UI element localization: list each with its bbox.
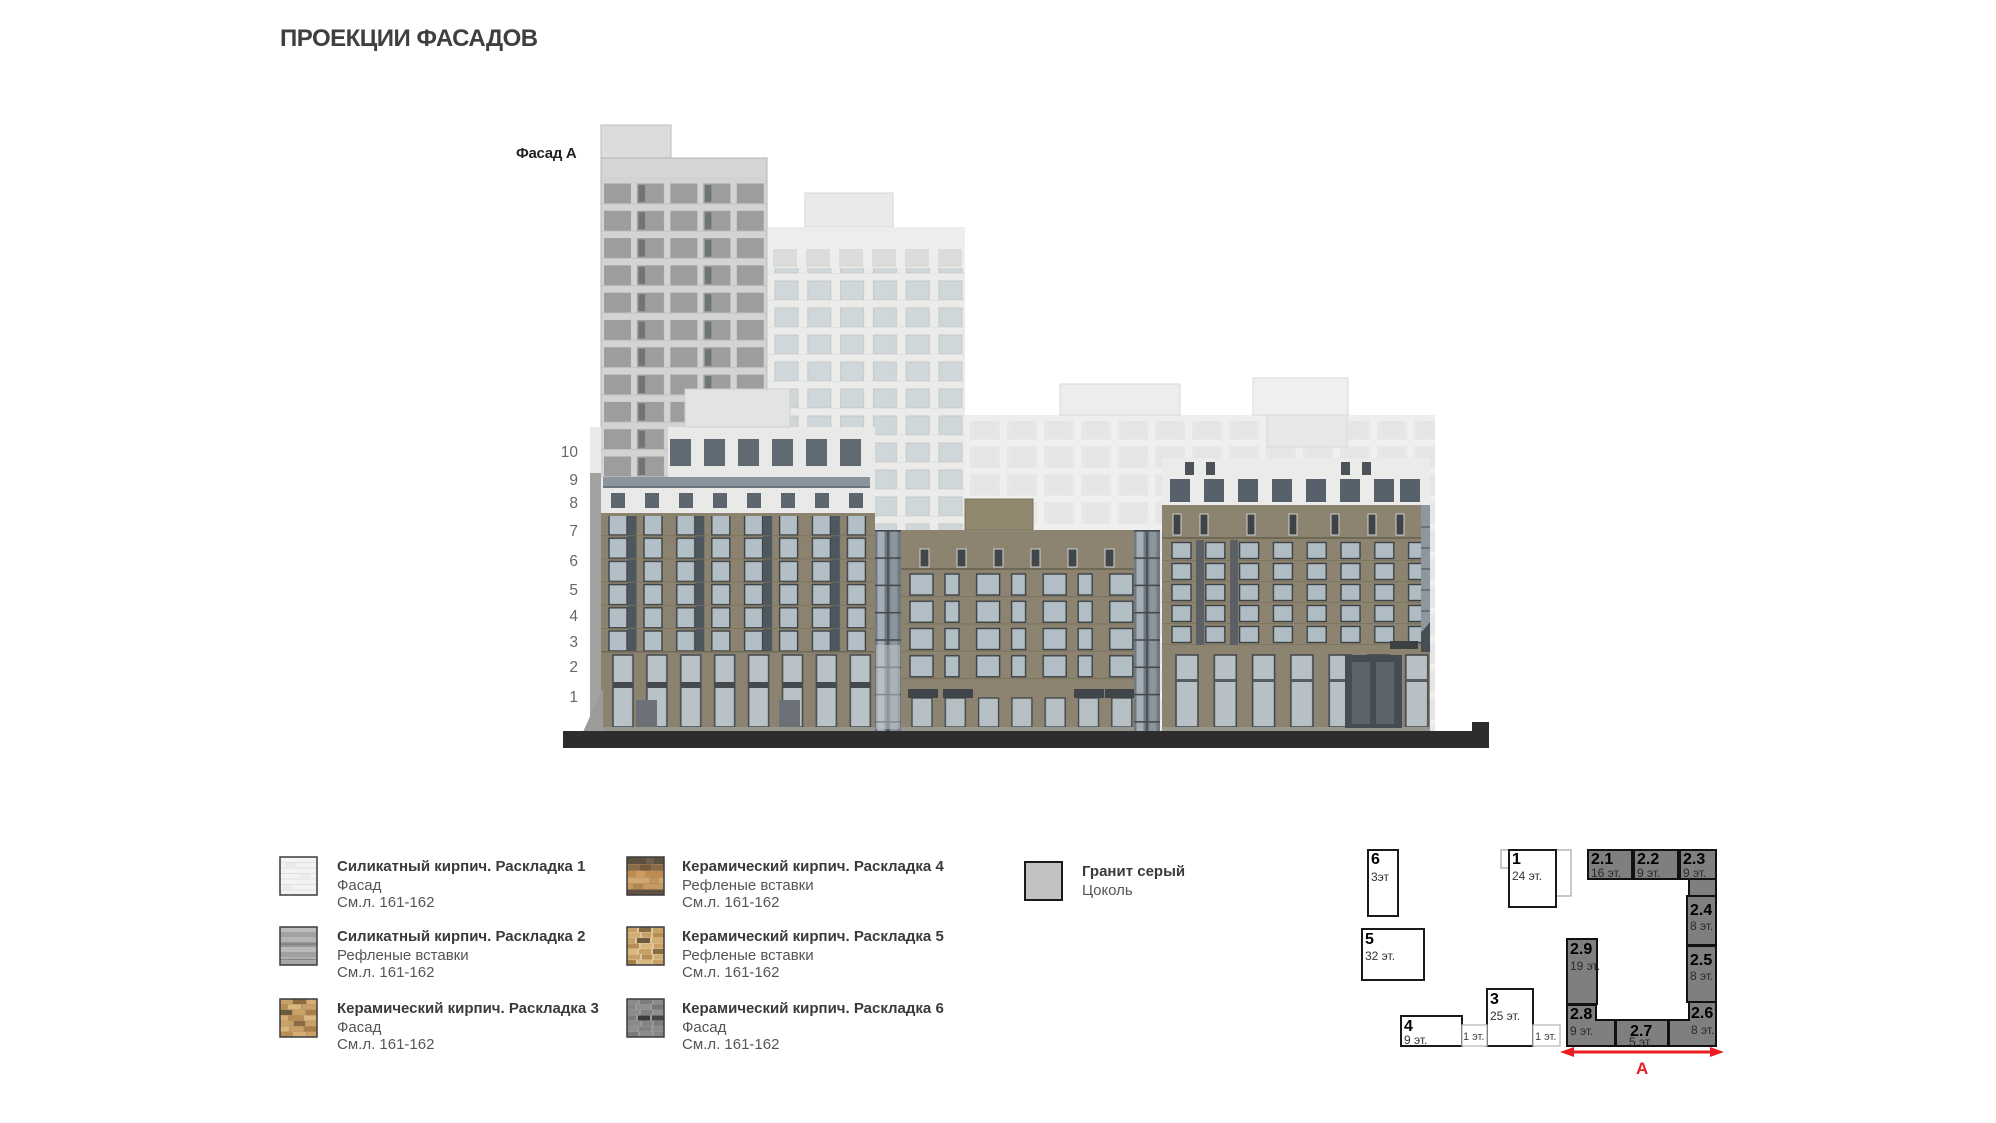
svg-text:Силикатный кирпич. Раскладка 1: Силикатный кирпич. Раскладка 1 — [337, 858, 585, 875]
svg-text:4: 4 — [569, 608, 578, 625]
svg-text:2.9: 2.9 — [1570, 941, 1592, 958]
svg-text:32 эт.: 32 эт. — [1365, 949, 1395, 963]
svg-text:Рефленые вставки: Рефленые вставки — [682, 877, 814, 894]
svg-text:Фасад А: Фасад А — [516, 145, 577, 162]
svg-text:9 эт.: 9 эт. — [1404, 1033, 1427, 1047]
svg-text:24 эт.: 24 эт. — [1512, 869, 1542, 883]
svg-text:ПРОЕКЦИИ ФАСАДОВ: ПРОЕКЦИИ ФАСАДОВ — [280, 25, 538, 52]
svg-text:Силикатный кирпич. Раскладка 2: Силикатный кирпич. Раскладка 2 — [337, 928, 585, 945]
svg-text:6: 6 — [569, 553, 578, 570]
svg-text:1: 1 — [1512, 851, 1521, 868]
svg-text:Керамический кирпич. Раскладка: Керамический кирпич. Раскладка 5 — [682, 928, 944, 945]
svg-text:А: А — [1636, 1059, 1648, 1078]
svg-text:См.л. 161-162: См.л. 161-162 — [337, 894, 434, 911]
svg-text:19 эт.: 19 эт. — [1570, 959, 1600, 973]
svg-text:См.л. 161-162: См.л. 161-162 — [682, 1036, 779, 1053]
svg-text:2.4: 2.4 — [1690, 902, 1712, 919]
svg-text:Цоколь: Цоколь — [1082, 882, 1133, 899]
svg-text:1 эт.: 1 эт. — [1463, 1031, 1484, 1043]
svg-text:2.5: 2.5 — [1690, 952, 1712, 969]
svg-text:7: 7 — [569, 523, 578, 540]
svg-text:1 эт.: 1 эт. — [1535, 1031, 1556, 1043]
svg-text:1: 1 — [569, 689, 578, 706]
svg-text:8 эт.: 8 эт. — [1690, 919, 1713, 933]
svg-text:2.6: 2.6 — [1691, 1005, 1713, 1022]
svg-text:25 эт.: 25 эт. — [1490, 1009, 1520, 1023]
svg-text:Рефленые вставки: Рефленые вставки — [682, 947, 814, 964]
svg-text:9: 9 — [569, 472, 578, 489]
svg-text:8: 8 — [569, 495, 578, 512]
svg-text:8 эт.: 8 эт. — [1690, 969, 1713, 983]
svg-text:5: 5 — [569, 582, 578, 599]
svg-text:16 эт.: 16 эт. — [1591, 866, 1621, 880]
svg-text:См.л. 161-162: См.л. 161-162 — [337, 964, 434, 981]
svg-text:2: 2 — [569, 659, 578, 676]
svg-text:3эт: 3эт — [1371, 870, 1390, 884]
svg-text:Керамический кирпич. Раскладка: Керамический кирпич. Раскладка 6 — [682, 1000, 944, 1017]
svg-text:Керамический кирпич. Раскладка: Керамический кирпич. Раскладка 4 — [682, 858, 944, 875]
svg-text:Фасад: Фасад — [337, 1019, 382, 1036]
svg-text:Рефленые вставки: Рефленые вставки — [337, 947, 469, 964]
svg-text:См.л. 161-162: См.л. 161-162 — [337, 1036, 434, 1053]
svg-text:9 эт.: 9 эт. — [1683, 866, 1706, 880]
svg-text:Гранит серый: Гранит серый — [1082, 863, 1185, 880]
svg-text:9 эт.: 9 эт. — [1637, 866, 1660, 880]
svg-text:Керамический кирпич. Раскладка: Керамический кирпич. Раскладка 3 — [337, 1000, 599, 1017]
svg-text:Фасад: Фасад — [337, 877, 382, 894]
svg-text:См.л. 161-162: См.л. 161-162 — [682, 894, 779, 911]
svg-text:8 эт.: 8 эт. — [1691, 1023, 1714, 1037]
svg-text:5 эт.: 5 эт. — [1629, 1035, 1652, 1049]
svg-text:См.л. 161-162: См.л. 161-162 — [682, 964, 779, 981]
svg-text:6: 6 — [1371, 851, 1380, 868]
svg-text:2.8: 2.8 — [1570, 1006, 1592, 1023]
svg-text:5: 5 — [1365, 931, 1374, 948]
svg-text:3: 3 — [569, 634, 578, 651]
svg-text:3: 3 — [1490, 991, 1499, 1008]
svg-text:Фасад: Фасад — [682, 1019, 727, 1036]
svg-text:10: 10 — [561, 444, 579, 461]
svg-text:9 эт.: 9 эт. — [1570, 1024, 1593, 1038]
